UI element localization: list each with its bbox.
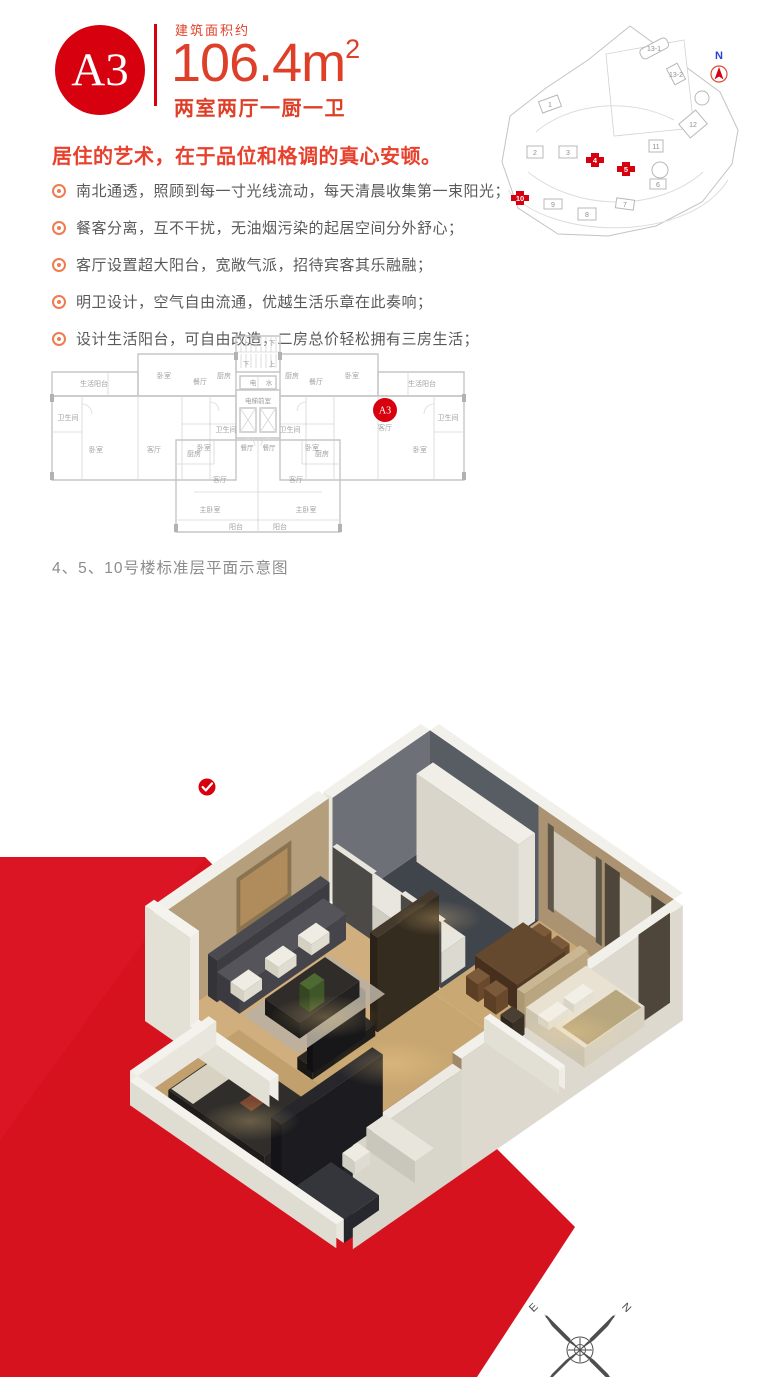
unit-badge: A3 (55, 25, 145, 115)
svg-text:卫生间: 卫生间 (438, 413, 459, 422)
area-value: 106.4m2 (171, 32, 359, 94)
svg-text:3: 3 (566, 150, 570, 157)
compass-rose: N E W S (527, 1301, 633, 1377)
svg-text:上: 上 (269, 359, 276, 368)
svg-text:N: N (715, 50, 723, 62)
check-badge (199, 779, 216, 796)
svg-text:卧室: 卧室 (413, 445, 427, 454)
ring-bullet-icon (52, 295, 66, 309)
svg-text:厨房: 厨房 (217, 371, 231, 380)
svg-text:下: 下 (243, 360, 250, 368)
ring-bullet-icon (52, 258, 66, 272)
compass-e: E (527, 1301, 541, 1315)
svg-text:生活阳台: 生活阳台 (80, 379, 108, 388)
svg-text:电梯前室: 电梯前室 (245, 396, 272, 405)
svg-text:卫生间: 卫生间 (216, 425, 237, 434)
svg-text:餐厅: 餐厅 (263, 443, 277, 452)
svg-text:2: 2 (533, 150, 537, 157)
north-indicator: N (711, 50, 727, 82)
svg-text:7: 7 (623, 202, 627, 209)
ring-bullet-icon (52, 184, 66, 198)
svg-text:9: 9 (551, 202, 555, 209)
svg-text:13-2: 13-2 (669, 72, 683, 79)
headline: 居住的艺术，在于品位和格调的真心安顿。 (52, 140, 442, 169)
svg-text:1: 1 (548, 102, 552, 109)
svg-text:餐厅: 餐厅 (241, 443, 255, 452)
svg-text:客厅: 客厅 (147, 445, 161, 454)
svg-text:卫生间: 卫生间 (280, 425, 301, 434)
unit-badge-label: A3 (71, 43, 128, 97)
svg-text:主卧室: 主卧室 (200, 505, 221, 514)
floor-plan: 生活阳台 卧室 餐厅 厨房 卫生间 卧室 客厅 卧室 卫生间 上 下 下 上 电… (42, 332, 474, 538)
layout-subtitle: 两室两厅一厨一卫 (174, 92, 346, 121)
feature-item: 客厅设置超大阳台，宽敞气派，招待宾客其乐融融； (52, 246, 510, 283)
feature-item: 明卫设计，空气自由流通，优越生活乐章在此奏响； (52, 283, 510, 320)
svg-text:卧室: 卧室 (89, 445, 103, 454)
svg-text:餐厅: 餐厅 (309, 377, 323, 386)
svg-text:水: 水 (266, 378, 273, 387)
area-sup: 2 (345, 34, 359, 64)
svg-text:厨房: 厨房 (285, 371, 299, 380)
svg-text:生活阳台: 生活阳台 (408, 379, 436, 388)
svg-text:客厅: 客厅 (378, 423, 392, 432)
svg-text:主卧室: 主卧室 (296, 505, 317, 514)
svg-text:卫生间: 卫生间 (58, 413, 79, 422)
svg-text:电: 电 (250, 378, 257, 387)
svg-text:餐厅: 餐厅 (193, 377, 207, 386)
svg-text:卧室: 卧室 (157, 371, 171, 380)
poster-page: N E W S A3 建筑面积约 106.4m2 两室两厅一厨一卫 1 2 3 … (0, 0, 760, 1377)
svg-text:卧室: 卧室 (305, 443, 319, 452)
svg-text:11: 11 (652, 144, 659, 151)
svg-text:上: 上 (243, 338, 250, 347)
svg-text:6: 6 (656, 182, 660, 189)
svg-text:阳台: 阳台 (273, 522, 287, 531)
feature-list: 南北通透，照顾到每一寸光线流动，每天清晨收集第一束阳光； 餐客分离，互不干扰，无… (52, 172, 510, 357)
header-divider (154, 24, 157, 106)
svg-text:10: 10 (516, 194, 524, 203)
svg-text:客厅: 客厅 (289, 475, 303, 484)
svg-text:A3: A3 (379, 406, 391, 417)
ring-bullet-icon (52, 221, 66, 235)
svg-text:阳台: 阳台 (229, 522, 243, 531)
svg-text:客厅: 客厅 (213, 475, 227, 484)
floorplan-caption: 4、5、10号楼标准层平面示意图 (52, 556, 288, 578)
svg-text:卧室: 卧室 (345, 371, 359, 380)
svg-text:12: 12 (689, 122, 697, 129)
svg-text:13-1: 13-1 (647, 46, 661, 53)
svg-text:厨房: 厨房 (187, 449, 201, 458)
feature-item: 南北通透，照顾到每一寸光线流动，每天清晨收集第一束阳光； (52, 172, 510, 209)
site-plan: 1 2 3 6 7 8 9 11 12 13-1 13-2 4 5 (488, 12, 750, 254)
compass-n: N (619, 1301, 633, 1315)
a3-unit-marker: A3 (373, 398, 397, 422)
feature-item: 餐客分离，互不干扰，无油烟污染的起居空间分外舒心； (52, 209, 510, 246)
svg-text:5: 5 (624, 165, 628, 174)
svg-text:8: 8 (585, 212, 589, 219)
svg-text:下: 下 (269, 339, 276, 347)
